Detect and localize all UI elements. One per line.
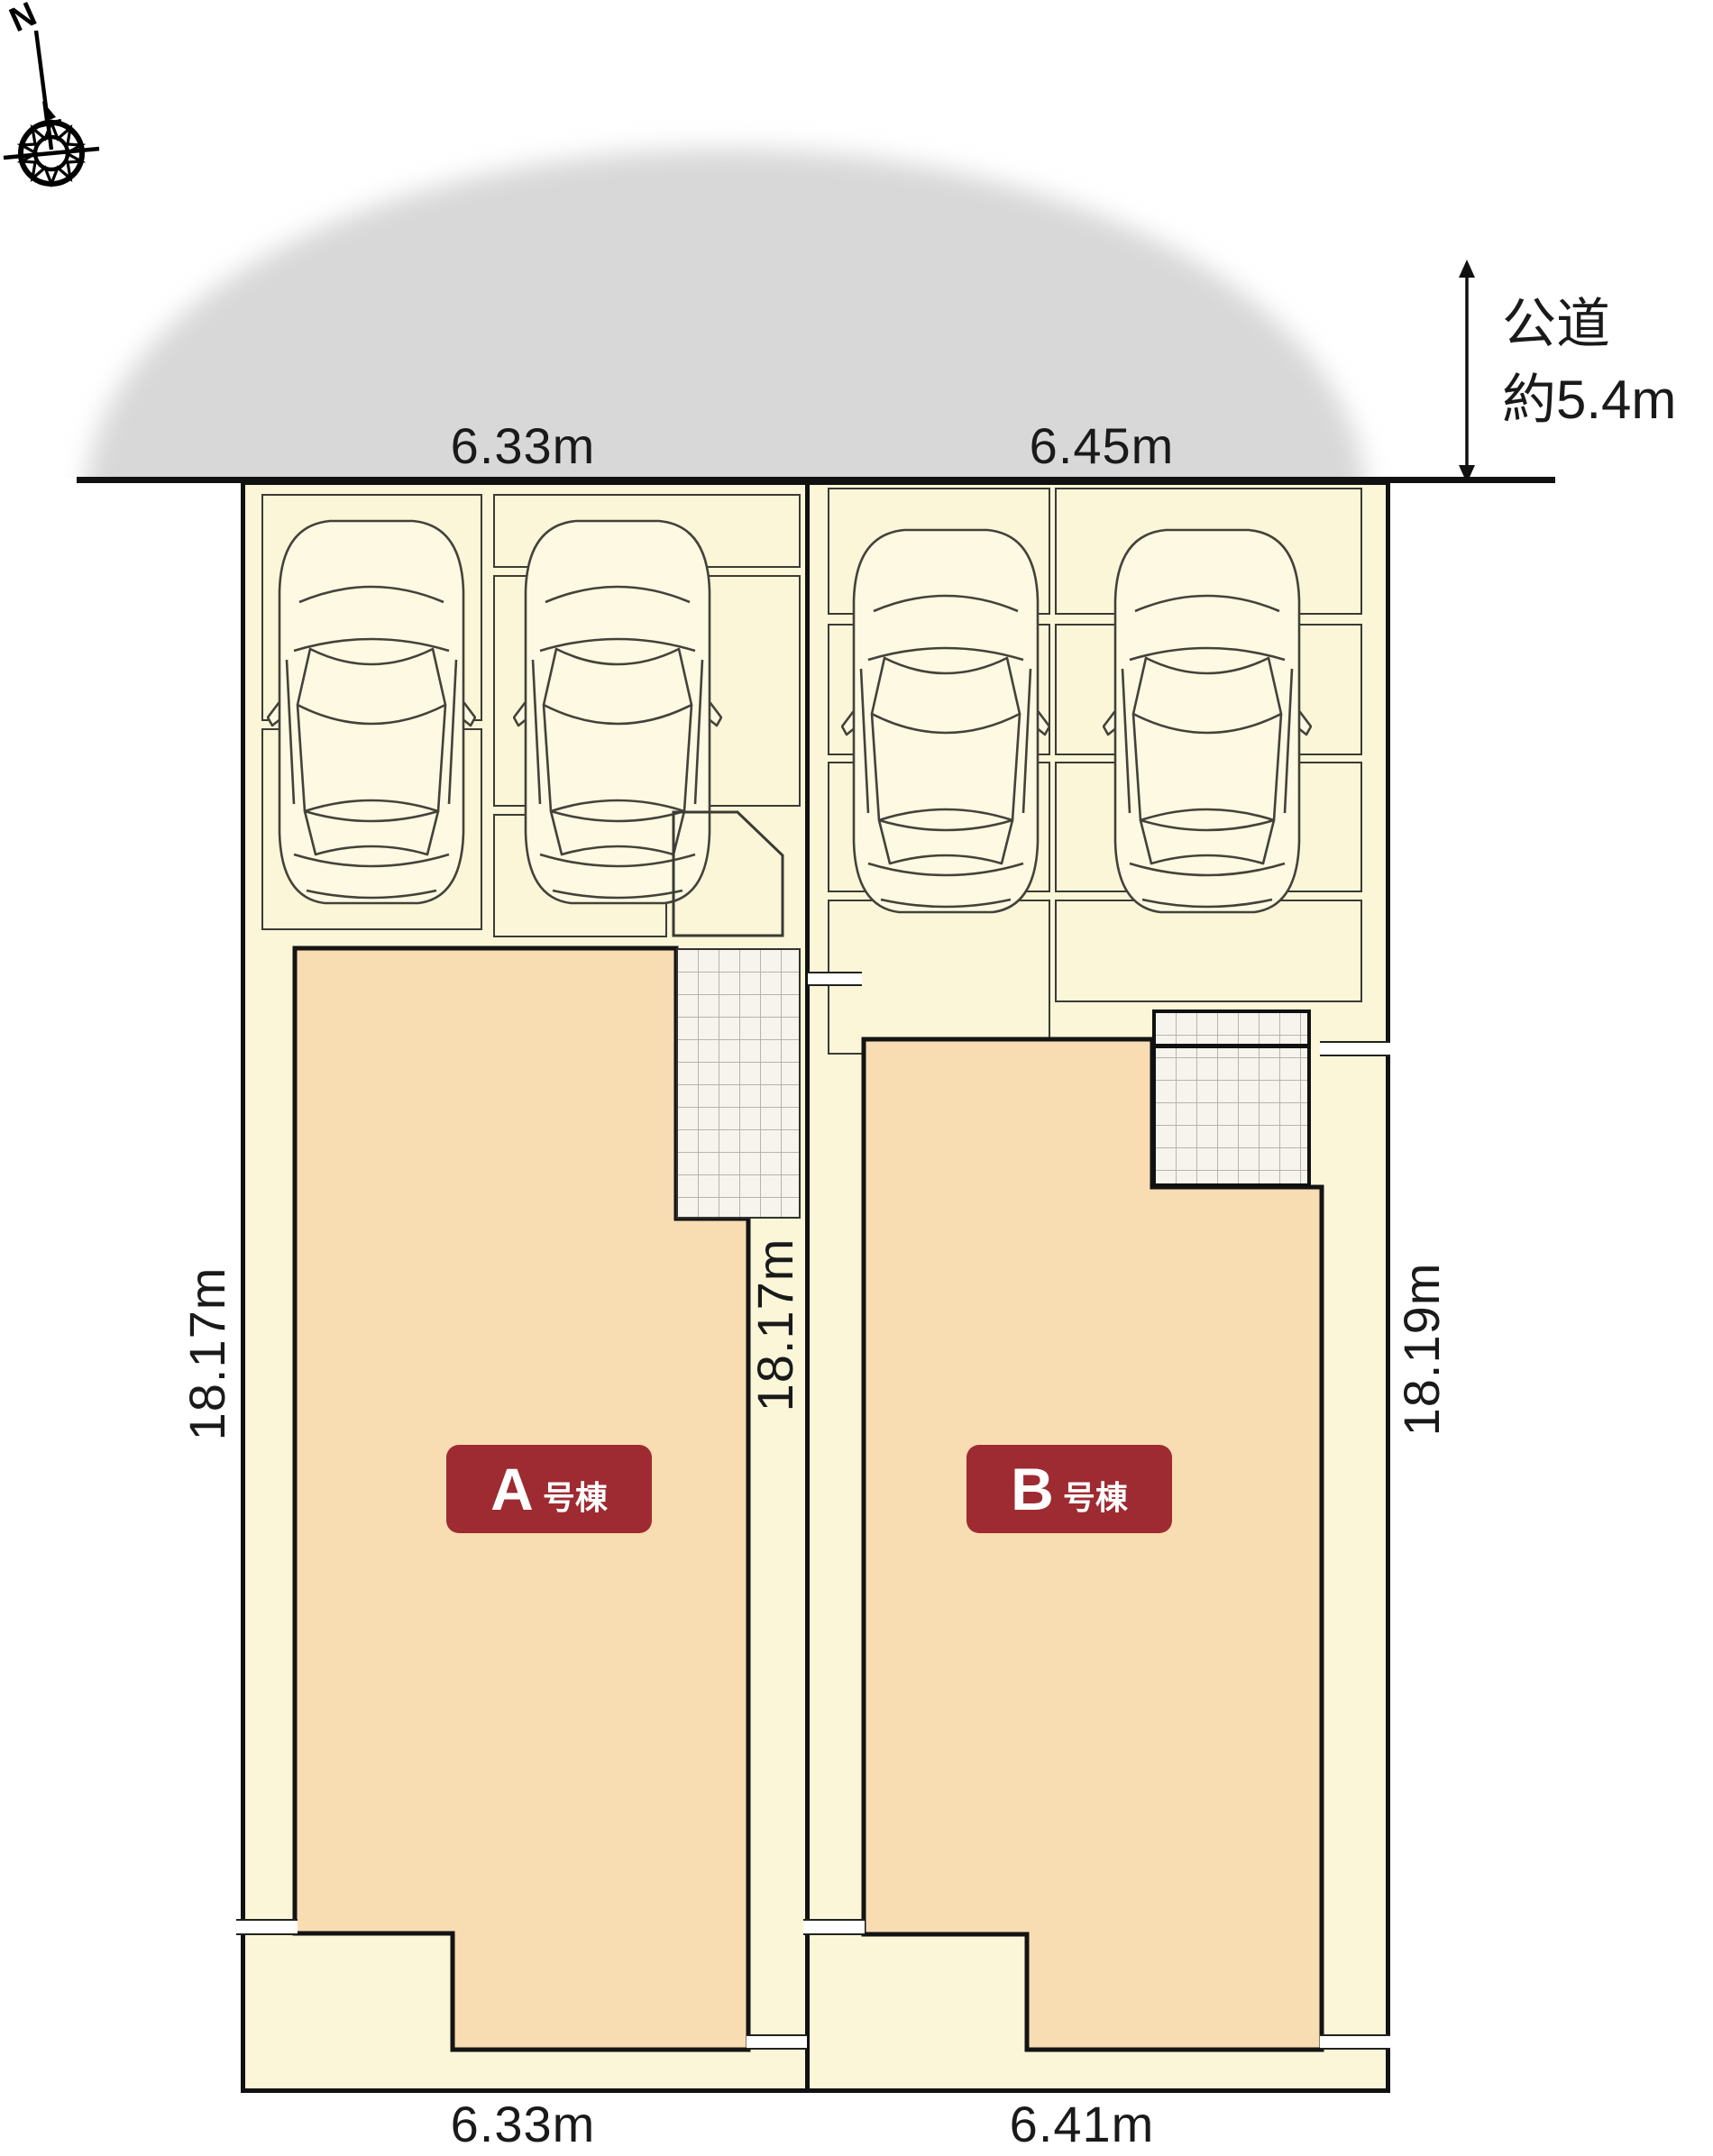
door-notch-b-right [1320, 2034, 1390, 2050]
road-label-line1: 公道 [1502, 287, 1676, 362]
car-a1-icon [267, 516, 476, 909]
dim-lot-a-top: 6.33m [433, 416, 613, 475]
car-b1-icon [841, 525, 1050, 918]
building-b-letter: B [1011, 1445, 1054, 1533]
building-a-letter: A [490, 1445, 534, 1533]
road-width-arrow [1450, 260, 1486, 483]
building-a-badge: A 号棟 [446, 1445, 652, 1533]
compass-icon: N [2, 2, 173, 214]
dim-lot-a-bottom: 6.33m [424, 2095, 622, 2153]
building-b-badge: B 号棟 [966, 1445, 1172, 1533]
site-plan: N 公道 約5.4m 6.33m 6.45m [0, 0, 1713, 2156]
entrance-tiles-a [676, 948, 801, 1219]
entrance-tiles-b [1152, 1009, 1311, 1187]
door-notch-b-left [803, 1919, 865, 1935]
door-notch-a-left [236, 1919, 298, 1935]
road-label: 公道 約5.4m [1502, 287, 1676, 438]
gate-notch-b-upper-right [1320, 1041, 1390, 1056]
building-b-suffix: 号棟 [1063, 1472, 1128, 1519]
dim-lot-b-top: 6.45m [1012, 416, 1192, 475]
dim-lot-b-bottom: 6.41m [983, 2095, 1181, 2153]
road-label-line2: 約5.4m [1502, 362, 1676, 438]
door-notch-a-right [747, 2034, 807, 2050]
tile-b-building-edge [1156, 1044, 1307, 1048]
dim-lot-b-right: 18.19m [1395, 1241, 1449, 1457]
building-a-suffix: 号棟 [543, 1472, 608, 1519]
gate-notch-b-upper-left [808, 972, 862, 986]
dim-lot-a-left: 18.17m [180, 1246, 234, 1462]
car-a2-icon [513, 516, 722, 909]
dim-lot-a-right: 18.17m [748, 1217, 802, 1433]
car-b2-icon [1103, 525, 1312, 918]
